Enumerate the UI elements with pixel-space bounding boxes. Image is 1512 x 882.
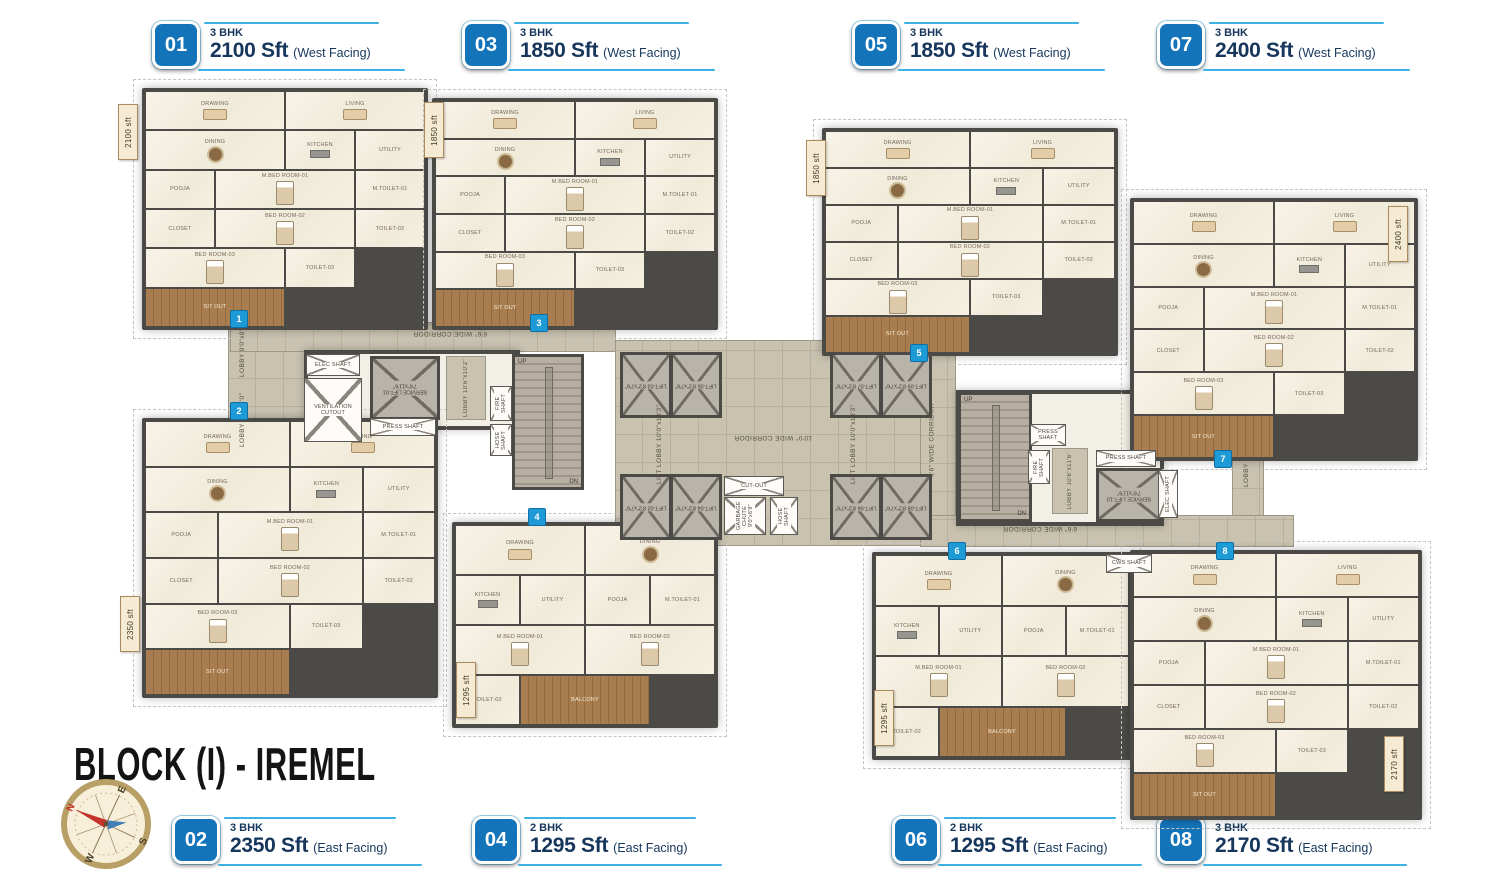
room-label: UTILITY: [959, 628, 981, 634]
room-label: CLOSET: [850, 257, 873, 263]
room-bed-room-03: BED ROOM-03: [1134, 373, 1273, 414]
stair-up-label: UP: [964, 397, 972, 403]
room-toilet-03: TOILET-03: [971, 280, 1042, 315]
unit-area-value: 1295 Sft: [530, 835, 608, 857]
callout-accent-line: [1209, 22, 1384, 24]
room-m-bed-room-01: M.BED ROOM-01: [1205, 288, 1344, 329]
unit-number-badge: 07: [1157, 21, 1205, 69]
room-label: KITCHEN: [1299, 611, 1325, 617]
entry-marker-5: 5: [910, 344, 928, 362]
room-label: M.BED ROOM-01: [915, 665, 962, 671]
room-label: UTILITY: [1372, 616, 1394, 622]
apartment-unit-5: DRAWINGLIVINGDININGKITCHENUTILITYPOOJAM.…: [822, 128, 1118, 356]
room-label: BED ROOM-02: [265, 213, 305, 219]
unit-callout-text: 3 BHK2170 Sft(East Facing): [1215, 823, 1373, 857]
room-pooja: POOJA: [146, 171, 214, 208]
apartment-unit-3: DRAWINGLIVINGDININGKITCHENUTILITYPOOJAM.…: [432, 98, 718, 330]
room-dining: DINING: [826, 169, 969, 204]
room-m-bed-room-01: M.BED ROOM-01: [216, 171, 354, 208]
area-tag-label: 2400 sft: [1394, 219, 1403, 250]
room-label: M.BED ROOM-01: [262, 173, 309, 179]
room-m-bed-room-01: M.BED ROOM-01: [1206, 642, 1347, 684]
room-label: KITCHEN: [894, 623, 920, 629]
service-lift-label: SERVICE LIFT-10 7'6"x11'6": [1099, 488, 1159, 503]
room-label: BED ROOM-02: [1256, 691, 1296, 697]
room-label: POOJA: [608, 597, 628, 603]
apartment-unit-6: DRAWINGDININGKITCHENUTILITYPOOJAM.BED RO…: [872, 552, 1132, 760]
room-bed-room-02: BED ROOM-02: [1205, 330, 1344, 371]
room-bed-room-03: BED ROOM-03: [146, 605, 289, 649]
room-bed-room-02: BED ROOM-02: [899, 243, 1042, 278]
room-label: LIVING: [1033, 140, 1052, 146]
room-dining: DINING: [1134, 245, 1273, 286]
room-label: TOILET-02: [892, 729, 921, 735]
room-label: SIT OUT: [206, 669, 229, 675]
room-closet: CLOSET: [436, 215, 504, 251]
area-tag-label: 2100 sft: [124, 117, 133, 148]
room-dining: DINING: [436, 140, 574, 176]
room-bed-room-02: BED ROOM-02: [219, 559, 362, 603]
room-m-toilet-01: M.TOILET-01: [1349, 642, 1419, 684]
room-toilet-02: TOILET-02: [356, 210, 424, 247]
room-label: TOILET-03: [312, 623, 341, 629]
room-m-toilet-01: M.TOILET-01: [651, 576, 714, 624]
room-living: LIVING: [971, 132, 1114, 167]
room-living: LIVING: [286, 92, 424, 129]
room-sit-out: SIT OUT: [436, 290, 574, 326]
shaft-fire: FIRE SHAFT: [1028, 450, 1050, 484]
area-tag-label: 1295 sft: [462, 675, 471, 706]
floor-plan-sheet: LOBBY 10'6"x10'2"LOBBY 10'6"x11'6"UPDNUP…: [0, 0, 1512, 882]
shaft-cws: CWS SHAFT: [1106, 554, 1152, 573]
room-label: POOJA: [170, 186, 190, 192]
room-m-bed-room-01: M.BED ROOM-01: [899, 206, 1042, 241]
unit-callout-text: 3 BHK2400 Sft(West Facing): [1215, 28, 1376, 62]
room-label: DINING: [1193, 255, 1213, 261]
callout-accent-line: [514, 22, 689, 24]
staircase: UPDN: [512, 354, 584, 490]
lift-label: LIFT-02 8'2"x7'6": [624, 503, 667, 511]
unit-area-line: 2170 Sft(East Facing): [1215, 835, 1373, 857]
unit-callout-text: 2 BHK1295 Sft(East Facing): [950, 823, 1108, 857]
shaft-label: CWS SHAFT: [1111, 560, 1147, 566]
entry-marker-6: 6: [948, 542, 966, 560]
unit-area-value: 2350 Sft: [230, 835, 308, 857]
area-tag-label: 2170 sft: [1390, 749, 1399, 780]
unit-callout-text: 3 BHK2350 Sft(East Facing): [230, 823, 388, 857]
lift-label: LIFT-05 8'2"x7'6": [674, 381, 717, 389]
room-m-toilet-01: M.TOILET-01: [1044, 206, 1115, 241]
room-toilet-03: TOILET-03: [286, 249, 354, 286]
area-tag-label: 1850 sft: [812, 153, 821, 184]
room-dining: DINING: [146, 131, 284, 168]
unit-facing-label: (East Facing): [313, 842, 387, 855]
room-drawing: DRAWING: [456, 526, 584, 574]
area-tag: 2350 sft: [120, 596, 140, 652]
shaft-label: GARBAGE CHUTE 9'0"x6'9": [735, 498, 755, 534]
room-label: BED ROOM-03: [1184, 735, 1224, 741]
room-label: TOILET-03: [992, 294, 1021, 300]
shaft-label: PRESS SHAFT: [1105, 455, 1147, 461]
shaft-label: HOSE SHAFT: [494, 425, 508, 455]
area-tag: 1295 sft: [456, 662, 476, 718]
stair-rail: [545, 367, 552, 478]
room-kitchen: KITCHEN: [876, 607, 938, 656]
shaft-garbage: GARBAGE CHUTE 9'0"x6'9": [724, 497, 766, 535]
room-label: TOILET-03: [306, 265, 335, 271]
room-bed-room-02: BED ROOM-02: [586, 626, 714, 674]
room-label: POOJA: [171, 532, 191, 538]
shaft-elec: ELEC SHAFT: [306, 354, 360, 376]
corridor-label: LOBBY 9'0"x8'0": [236, 390, 250, 450]
room-bed-room-03: BED ROOM-03: [1134, 730, 1275, 772]
shaft-elec: ELEC SHAFT: [1158, 470, 1178, 518]
room-label: POOJA: [1158, 305, 1178, 311]
stair-dn-label: DN: [1017, 511, 1026, 517]
room-label: TOILET-03: [1295, 391, 1324, 397]
room-label: DINING: [1194, 608, 1214, 614]
room-bed-room-02: BED ROOM-02: [506, 215, 644, 251]
room-label: M.BED ROOM-01: [947, 207, 994, 213]
apartment-unit-8: DRAWINGLIVINGDININGKITCHENUTILITYPOOJAM.…: [1130, 550, 1422, 820]
callout-accent-line: [524, 817, 696, 819]
room-utility: UTILITY: [940, 607, 1002, 656]
service-lift: SERVICE LIFT-01 7'6"x11'6": [370, 356, 440, 420]
unit-area-line: 1850 Sft(West Facing): [520, 40, 681, 62]
room-label: BED ROOM-03: [1183, 378, 1223, 384]
room-label: SIT OUT: [1192, 434, 1215, 440]
lobby-label: LOBBY 10'6"x10'2": [463, 359, 469, 417]
service-lift: SERVICE LIFT-10 7'6"x11'6": [1096, 468, 1162, 522]
shaft-hose: HOSE SHAFT: [770, 497, 798, 535]
room-label: UTILITY: [379, 147, 401, 153]
room-label: SIT OUT: [204, 304, 227, 310]
unit-number-badge: 06: [892, 816, 940, 864]
room-label: KITCHEN: [1296, 257, 1322, 263]
room-drawing: DRAWING: [876, 556, 1001, 605]
room-closet: CLOSET: [146, 559, 217, 603]
apartment-unit-1: DRAWINGLIVINGDININGKITCHENUTILITYPOOJAM.…: [142, 88, 428, 330]
room-label: POOJA: [460, 192, 480, 198]
room-label: TOILET-02: [666, 230, 695, 236]
callout-accent-line: [224, 817, 396, 819]
room-label: POOJA: [1159, 660, 1179, 666]
callout-accent-line: [508, 69, 715, 71]
room-kitchen: KITCHEN: [291, 468, 362, 512]
room-label: M.BED ROOM-01: [1253, 647, 1300, 653]
room-label: SIT OUT: [886, 331, 909, 337]
room-label: SIT OUT: [494, 305, 517, 311]
room-label: BED ROOM-03: [877, 281, 917, 287]
room-label: M.TOILET-01: [1080, 628, 1115, 634]
room-toilet-02: TOILET-02: [1044, 243, 1115, 278]
room-label: POOJA: [1024, 628, 1044, 634]
shaft-cutout: CUT-OUT: [724, 476, 784, 496]
room-sit-out: SIT OUT: [146, 650, 289, 694]
room-label: DRAWING: [1190, 213, 1218, 219]
room-label: TOILET-03: [1297, 748, 1326, 754]
room-m-bed-room-01: M.BED ROOM-01: [219, 513, 362, 557]
room-pooja: POOJA: [436, 177, 504, 213]
unit-area-line: 1850 Sft(West Facing): [910, 40, 1071, 62]
callout-accent-line: [218, 864, 422, 866]
callout-accent-line: [898, 69, 1105, 71]
apartment-unit-2: DRAWINGLIVINGDININGKITCHENUTILITYPOOJAM.…: [142, 418, 438, 698]
room-bed-room-02: BED ROOM-02: [216, 210, 354, 247]
room-label: KITCHEN: [475, 592, 501, 598]
room-pooja: POOJA: [1134, 288, 1203, 329]
room-m-toilet-01: M.TOILET-01: [356, 171, 424, 208]
unit-area-value: 2100 Sft: [210, 40, 288, 62]
room-label: DRAWING: [201, 101, 229, 107]
room-label: CLOSET: [168, 226, 191, 232]
lift-lift-08: LIFT-08 8'2"x7'6": [880, 474, 932, 540]
room-toilet-03: TOILET-03: [1277, 730, 1347, 772]
unit-callout-text: 2 BHK1295 Sft(East Facing): [530, 823, 688, 857]
room-bed-room-03: BED ROOM-03: [436, 253, 574, 289]
callout-accent-line: [1203, 864, 1407, 866]
room-toilet-02: TOILET-02: [646, 215, 714, 251]
room-label: KITCHEN: [597, 149, 623, 155]
area-tag-label: 2350 sft: [126, 609, 135, 640]
entry-marker-3: 3: [530, 314, 548, 332]
unit-number-badge: 04: [472, 816, 520, 864]
shaft-label: FIRE SHAFT: [1032, 451, 1046, 483]
unit-area-line: 1295 Sft(East Facing): [950, 835, 1108, 857]
room-drawing: DRAWING: [1134, 554, 1275, 596]
room-bed-room-02: BED ROOM-02: [1206, 686, 1347, 728]
room-drawing: DRAWING: [826, 132, 969, 167]
area-tag: 2170 sft: [1384, 736, 1404, 792]
room-label: M.TOILET-01: [1366, 660, 1401, 666]
unit-area-value: 1850 Sft: [910, 40, 988, 62]
corridor-label: LIFT LOBBY 10'0"x18'3": [652, 386, 668, 502]
room-label: CLOSET: [1157, 704, 1180, 710]
room-label: UTILITY: [669, 154, 691, 160]
room-balcony: BALCONY: [940, 708, 1065, 757]
area-tag-label: 1850 sft: [430, 115, 439, 146]
room-label: BED ROOM-03: [195, 252, 235, 258]
room-bed-room-03: BED ROOM-03: [146, 249, 284, 286]
room-label: POOJA: [851, 220, 871, 226]
room-label: M.TOILET-01: [381, 532, 416, 538]
room-label: BED ROOM-02: [270, 565, 310, 571]
room-label: DRAWING: [204, 434, 232, 440]
room-m-bed-room-01: M.BED ROOM-01: [506, 177, 644, 213]
room-label: TOILET-03: [596, 267, 625, 273]
corridor-label: 6'6" WIDE CORRIDOR: [350, 327, 550, 340]
callout-accent-line: [198, 69, 405, 71]
room-label: BED ROOM-02: [555, 217, 595, 223]
entry-marker-1: 1: [230, 310, 248, 328]
room-pooja: POOJA: [146, 513, 217, 557]
room-label: BED ROOM-03: [197, 610, 237, 616]
room-label: UTILITY: [1068, 183, 1090, 189]
room-kitchen: KITCHEN: [1275, 245, 1344, 286]
room-label: KITCHEN: [307, 142, 333, 148]
room-label: UTILITY: [1369, 262, 1391, 268]
callout-accent-line: [518, 864, 722, 866]
entry-marker-2: 2: [230, 402, 248, 420]
callout-accent-line: [204, 22, 379, 24]
room-utility: UTILITY: [646, 140, 714, 176]
room-toilet-02: TOILET-02: [1346, 330, 1415, 371]
unit-facing-label: (West Facing): [1298, 47, 1376, 60]
lift-lift-05: LIFT-05 8'2"x7'6": [670, 352, 722, 418]
shaft-label: PRESS SHAFT: [1031, 429, 1065, 441]
unit-facing-label: (West Facing): [293, 47, 371, 60]
room-label: M.TOILET-01: [1362, 305, 1397, 311]
unit-callout-text: 3 BHK1850 Sft(West Facing): [910, 28, 1071, 62]
unit-facing-label: (East Facing): [1033, 842, 1107, 855]
room-living: LIVING: [576, 102, 714, 138]
corridor-label: 6'6" WIDE CORRIDOR: [960, 522, 1120, 535]
unit-callout-03: 033 BHK1850 Sft(West Facing): [462, 22, 681, 68]
room-label: DINING: [205, 139, 225, 145]
unit-callout-08: 083 BHK2170 Sft(East Facing): [1157, 817, 1373, 863]
room-label: DRAWING: [884, 140, 912, 146]
shaft-label: VENTILATION CUTOUT: [305, 404, 361, 416]
room-label: LIVING: [635, 110, 654, 116]
unit-callout-05: 053 BHK1850 Sft(West Facing): [852, 22, 1071, 68]
room-label: M.TOILET-01: [1061, 220, 1096, 226]
apartment-unit-4: DRAWINGDININGKITCHENUTILITYPOOJAM.BED RO…: [452, 522, 718, 728]
room-label: LIVING: [1338, 565, 1357, 571]
room-label: TOILET-02: [1064, 257, 1093, 263]
room-label: TOILET-02: [1365, 348, 1394, 354]
room-label: KITCHEN: [993, 178, 1019, 184]
unit-facing-label: (East Facing): [613, 842, 687, 855]
room-label: BED ROOM-02: [630, 634, 670, 640]
room-label: KITCHEN: [313, 481, 339, 487]
area-tag: 2100 sft: [118, 104, 138, 160]
room-closet: CLOSET: [1134, 330, 1203, 371]
area-tag-label: 1295 sft: [880, 703, 889, 734]
room-closet: CLOSET: [1134, 686, 1204, 728]
room-pooja: POOJA: [826, 206, 897, 241]
staircase: UPDN: [958, 392, 1032, 522]
lobby-floor: LOBBY 10'6"x10'2": [446, 356, 486, 420]
unit-area-value: 2400 Sft: [1215, 40, 1293, 62]
shaft-label: CUT-OUT: [740, 483, 768, 489]
room-drawing: DRAWING: [146, 422, 289, 466]
unit-area-value: 1850 Sft: [520, 40, 598, 62]
room-label: M.BED ROOM-01: [267, 519, 314, 525]
shaft-vent: VENTILATION CUTOUT: [304, 378, 362, 442]
room-label: UTILITY: [542, 597, 564, 603]
compass-rose: N E S W: [58, 776, 154, 872]
room-closet: CLOSET: [826, 243, 897, 278]
room-label: M.TOILET-01: [665, 597, 700, 603]
unit-number-badge: 03: [462, 21, 510, 69]
room-living: LIVING: [1277, 554, 1418, 596]
room-label: M.TOILET-01: [662, 192, 697, 198]
room-sit-out: SIT OUT: [826, 317, 969, 352]
unit-facing-label: (West Facing): [993, 47, 1071, 60]
room-toilet-03: TOILET-03: [576, 253, 644, 289]
room-label: DINING: [495, 147, 515, 153]
callout-accent-line: [938, 864, 1142, 866]
room-drawing: DRAWING: [436, 102, 574, 138]
unit-number-badge: 02: [172, 816, 220, 864]
lift-label: LIFT-06 8'2"x7'6": [834, 503, 877, 511]
room-label: CLOSET: [1157, 348, 1180, 354]
unit-callout-02: 023 BHK2350 Sft(East Facing): [172, 817, 388, 863]
room-label: CLOSET: [458, 230, 481, 236]
room-dining: DINING: [146, 468, 289, 512]
unit-area-line: 1295 Sft(East Facing): [530, 835, 688, 857]
lobby-floor: LOBBY 10'6"x11'6": [1052, 448, 1088, 514]
room-sit-out: SIT OUT: [1134, 774, 1275, 816]
service-lift-label: SERVICE LIFT-01 7'6"x11'6": [373, 381, 437, 396]
room-kitchen: KITCHEN: [576, 140, 644, 176]
unit-callout-text: 3 BHK1850 Sft(West Facing): [520, 28, 681, 62]
area-tag: 1850 sft: [806, 140, 826, 196]
room-label: DINING: [887, 176, 907, 182]
shaft-press: PRESS SHAFT: [1030, 424, 1066, 446]
shaft-hose: HOSE SHAFT: [490, 424, 512, 456]
room-label: BALCONY: [988, 729, 1016, 735]
room-label: M.TOILET-01: [372, 186, 407, 192]
unit-facing-label: (East Facing): [1298, 842, 1372, 855]
unit-area-value: 2170 Sft: [1215, 835, 1293, 857]
unit-area-value: 1295 Sft: [950, 835, 1028, 857]
stair-up-label: UP: [518, 359, 526, 365]
shaft-press: PRESS SHAFT: [370, 418, 436, 436]
room-label: TOILET-02: [473, 697, 502, 703]
room-label: M.BED ROOM-01: [552, 179, 599, 185]
room-drawing: DRAWING: [146, 92, 284, 129]
lift-label: LIFT-09 8'2"x7'6": [884, 381, 927, 389]
room-label: BALCONY: [571, 697, 599, 703]
corridor-label: 6'6" WIDE CORRIDOR: [926, 365, 939, 515]
room-kitchen: KITCHEN: [286, 131, 354, 168]
room-label: DRAWING: [1191, 565, 1219, 571]
shaft-label: HOSE SHAFT: [777, 498, 791, 534]
room-label: M.BED ROOM-01: [497, 634, 544, 640]
unit-area-line: 2400 Sft(West Facing): [1215, 40, 1376, 62]
unit-callout-04: 042 BHK1295 Sft(East Facing): [472, 817, 688, 863]
room-sit-out: SIT OUT: [146, 289, 284, 326]
room-utility: UTILITY: [1349, 598, 1419, 640]
room-m-toilet-01: M.TOILET-01: [646, 177, 714, 213]
room-m-bed-room-01: M.BED ROOM-01: [876, 657, 1001, 706]
room-m-toilet-01: M.TOILET-01: [1067, 607, 1129, 656]
room-m-toilet-01: M.TOILET-01: [364, 513, 435, 557]
room-balcony: BALCONY: [521, 676, 649, 724]
room-kitchen: KITCHEN: [1277, 598, 1347, 640]
room-toilet-02: TOILET-02: [364, 559, 435, 603]
room-kitchen: KITCHEN: [456, 576, 519, 624]
room-m-toilet-01: M.TOILET-01: [1346, 288, 1415, 329]
unit-callout-01: 013 BHK2100 Sft(West Facing): [152, 22, 371, 68]
room-label: LIVING: [345, 101, 364, 107]
lobby-label: LOBBY 10'6"x11'6": [1067, 452, 1073, 510]
corridor-label: LOBBY 9'0"x8'0": [236, 320, 250, 380]
callout-accent-line: [1203, 69, 1410, 71]
room-toilet-02: TOILET-02: [1349, 686, 1419, 728]
corridor-label: LOBBY: [1240, 444, 1254, 506]
unit-facing-label: (West Facing): [603, 47, 681, 60]
room-label: DINING: [207, 479, 227, 485]
lift-label: LIFT-08 8'2"x7'6": [884, 503, 927, 511]
room-utility: UTILITY: [364, 468, 435, 512]
room-label: DRAWING: [925, 571, 953, 577]
callout-accent-line: [904, 22, 1079, 24]
entry-marker-7: 7: [1214, 450, 1232, 468]
room-utility: UTILITY: [1044, 169, 1115, 204]
room-closet: CLOSET: [146, 210, 214, 247]
